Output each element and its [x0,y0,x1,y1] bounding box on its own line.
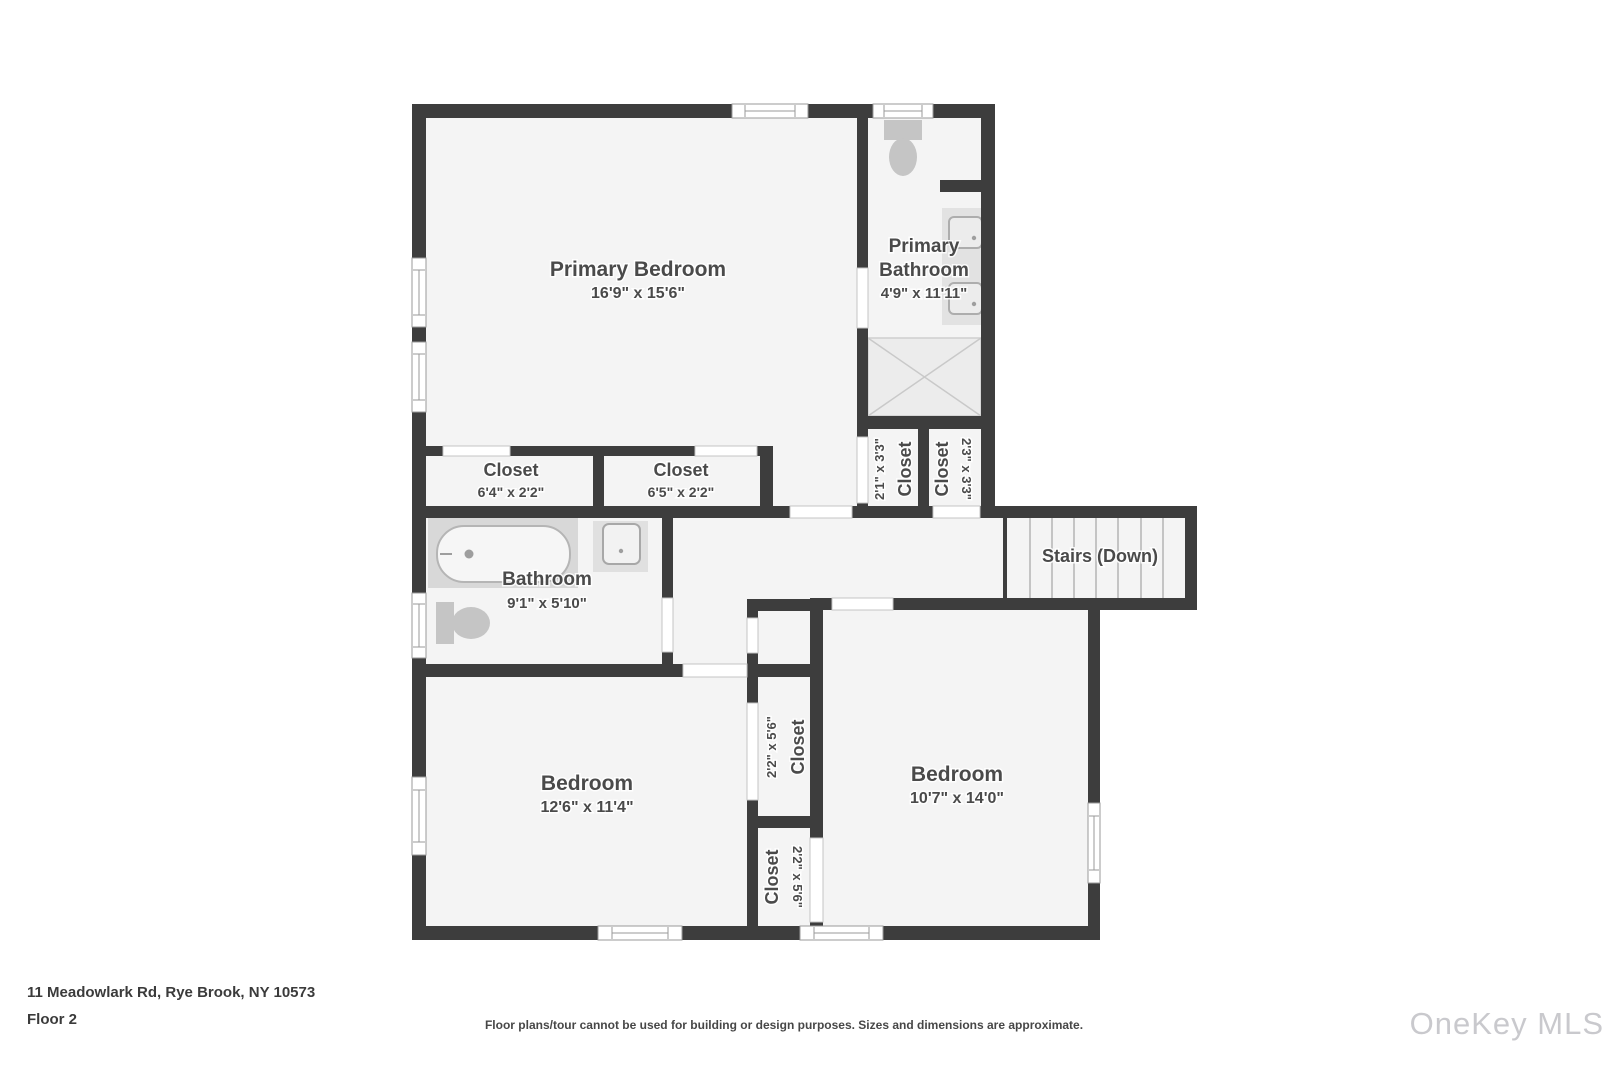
window [1088,803,1100,883]
room-label-closet-b: Closet [653,460,708,480]
room-dims-bedroom-right: 10'7" x 14'0" [910,790,1004,807]
room-dims-primary-bedroom: 16'9" x 15'6" [591,285,685,302]
room-dims-bathroom: 9'1" x 5'10" [507,595,587,612]
room-dims-closet-c: 2'1" x 3'3" [872,438,887,500]
room-dims-closet-f: 2'2" x 5'6" [790,846,805,908]
floor-plan: Primary Bedroom 16'9" x 15'6" Primary Ba… [0,0,1620,1080]
window [873,104,933,118]
wall-segment [981,104,995,518]
sink-icon [593,521,648,572]
window [412,342,426,412]
window [412,258,426,327]
wall-segment [1088,598,1100,940]
door-opening [695,446,757,456]
window [412,593,426,658]
wall-segment [412,926,1100,940]
room-label-closet-f: Closet [762,849,782,904]
window [412,777,426,855]
stairs-label: Stairs (Down) [1042,546,1158,566]
room-dims-closet-d: 2'3" x 3'3" [959,438,974,500]
room-label-bathroom: Bathroom [502,569,592,590]
wall-segment [412,664,823,677]
wall-segment [981,506,1197,518]
window [800,926,883,940]
onekey-mls-watermark: OneKey MLS [1410,1006,1604,1042]
room-label-primary-bathroom-line1: Primary [889,236,960,257]
door-opening [857,437,868,503]
door-opening [857,268,868,328]
wall-segment [918,429,929,518]
window [732,104,808,118]
wall-segment [1003,518,1007,598]
room-label-closet-e: Closet [788,719,808,774]
wall-segment [857,104,868,428]
room-label-closet-a: Closet [483,460,538,480]
door-opening [832,598,893,610]
room-dims-closet-a: 6'4" x 2'2" [478,484,545,500]
room-dims-closet-e: 2'2" x 5'6" [764,716,779,778]
floor-plan-page: Primary Bedroom 16'9" x 15'6" Primary Ba… [0,0,1620,1080]
room-dims-bedroom-left: 12'6" x 11'4" [540,799,633,816]
disclaimer-text: Floor plans/tour cannot be used for buil… [485,1018,1083,1032]
wall-segment [1185,506,1197,610]
door-opening [683,664,747,677]
room-label-closet-d: Closet [932,441,952,496]
door-opening [933,506,980,518]
door-opening [747,618,758,653]
wall-segment [747,816,823,828]
room-label-closet-c: Closet [895,441,915,496]
door-opening [747,703,758,800]
floor-label: Floor 2 [27,1011,77,1028]
room-label-primary-bedroom: Primary Bedroom [550,258,726,281]
door-opening [810,838,823,922]
wall-segment [940,180,981,192]
room-label-primary-bathroom-line2: Bathroom [879,260,969,281]
window [598,926,682,940]
shower-icon [868,338,981,416]
wall-segment [412,506,981,518]
room-label-bedroom-right: Bedroom [911,763,1003,786]
door-opening [790,506,852,518]
door-opening [662,598,673,652]
wall-segment [857,416,981,429]
property-address: 11 Meadowlark Rd, Rye Brook, NY 10573 [27,984,315,1001]
room-dims-primary-bathroom: 4'9" x 11'11" [881,285,967,302]
room-dims-closet-b: 6'5" x 2'2" [648,484,715,500]
room-label-bedroom-left: Bedroom [541,772,633,795]
door-opening [443,446,510,456]
